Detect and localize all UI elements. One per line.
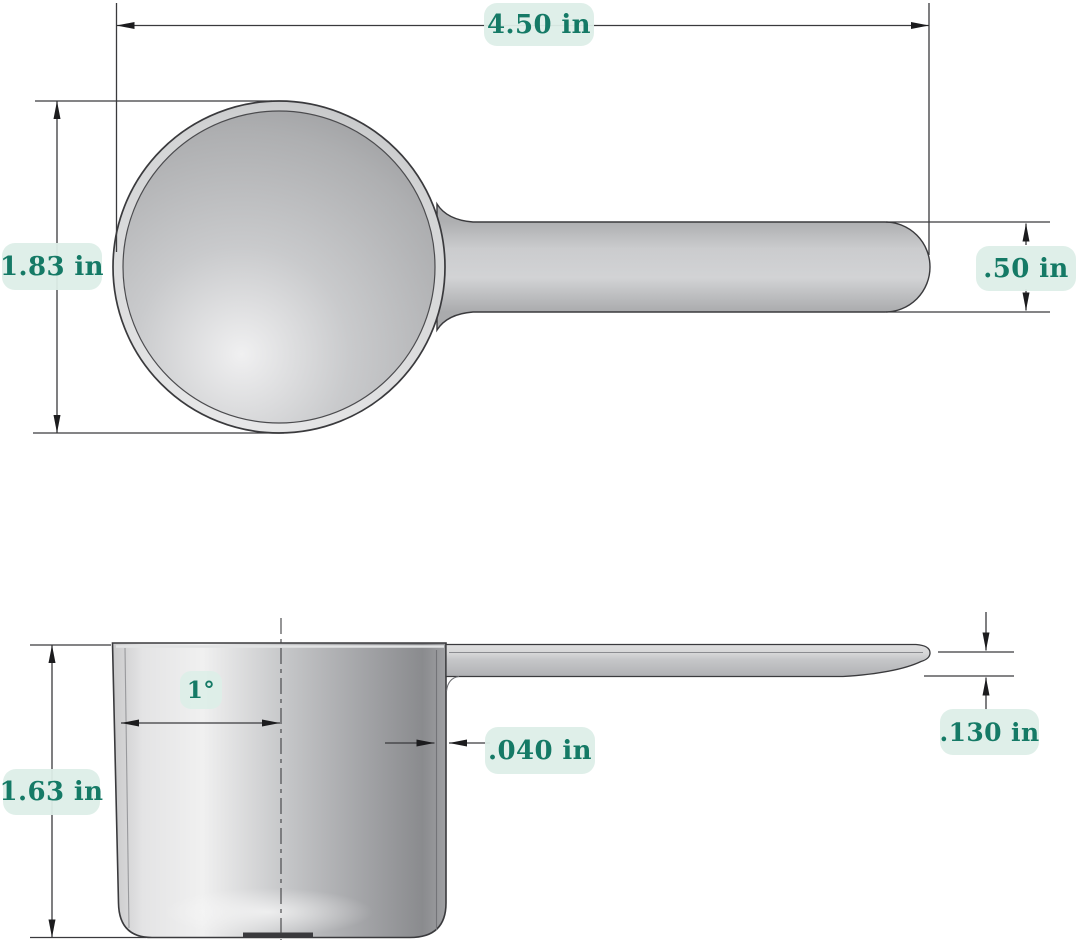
scoop-dimension-drawing bbox=[0, 0, 1080, 946]
bowl-interior bbox=[123, 111, 435, 423]
dim-label-wall-thickness: .040 in bbox=[485, 727, 595, 774]
dim-label-overall-length: 4.50 in bbox=[484, 3, 594, 46]
dim-label-handle-width: .50 in bbox=[976, 246, 1076, 291]
dim-label-cup-height: 1.63 in bbox=[3, 769, 100, 815]
scoop-side-view bbox=[113, 618, 931, 940]
technical-drawing-canvas: 4.50 in 1.83 in .50 in 1.63 in 1° .040 i… bbox=[0, 0, 1080, 946]
dim-label-draft-angle: 1° bbox=[180, 671, 222, 709]
dim-label-bowl-diameter: 1.83 in bbox=[2, 243, 102, 290]
scoop-handle-side-view bbox=[446, 645, 930, 677]
handle-wall-fillet bbox=[447, 677, 460, 692]
cup-bottom-highlight bbox=[163, 888, 373, 936]
dim-label-handle-thickness: .130 in bbox=[940, 709, 1039, 755]
scoop-top-view bbox=[113, 101, 930, 433]
scoop-handle-top-view bbox=[437, 204, 930, 330]
